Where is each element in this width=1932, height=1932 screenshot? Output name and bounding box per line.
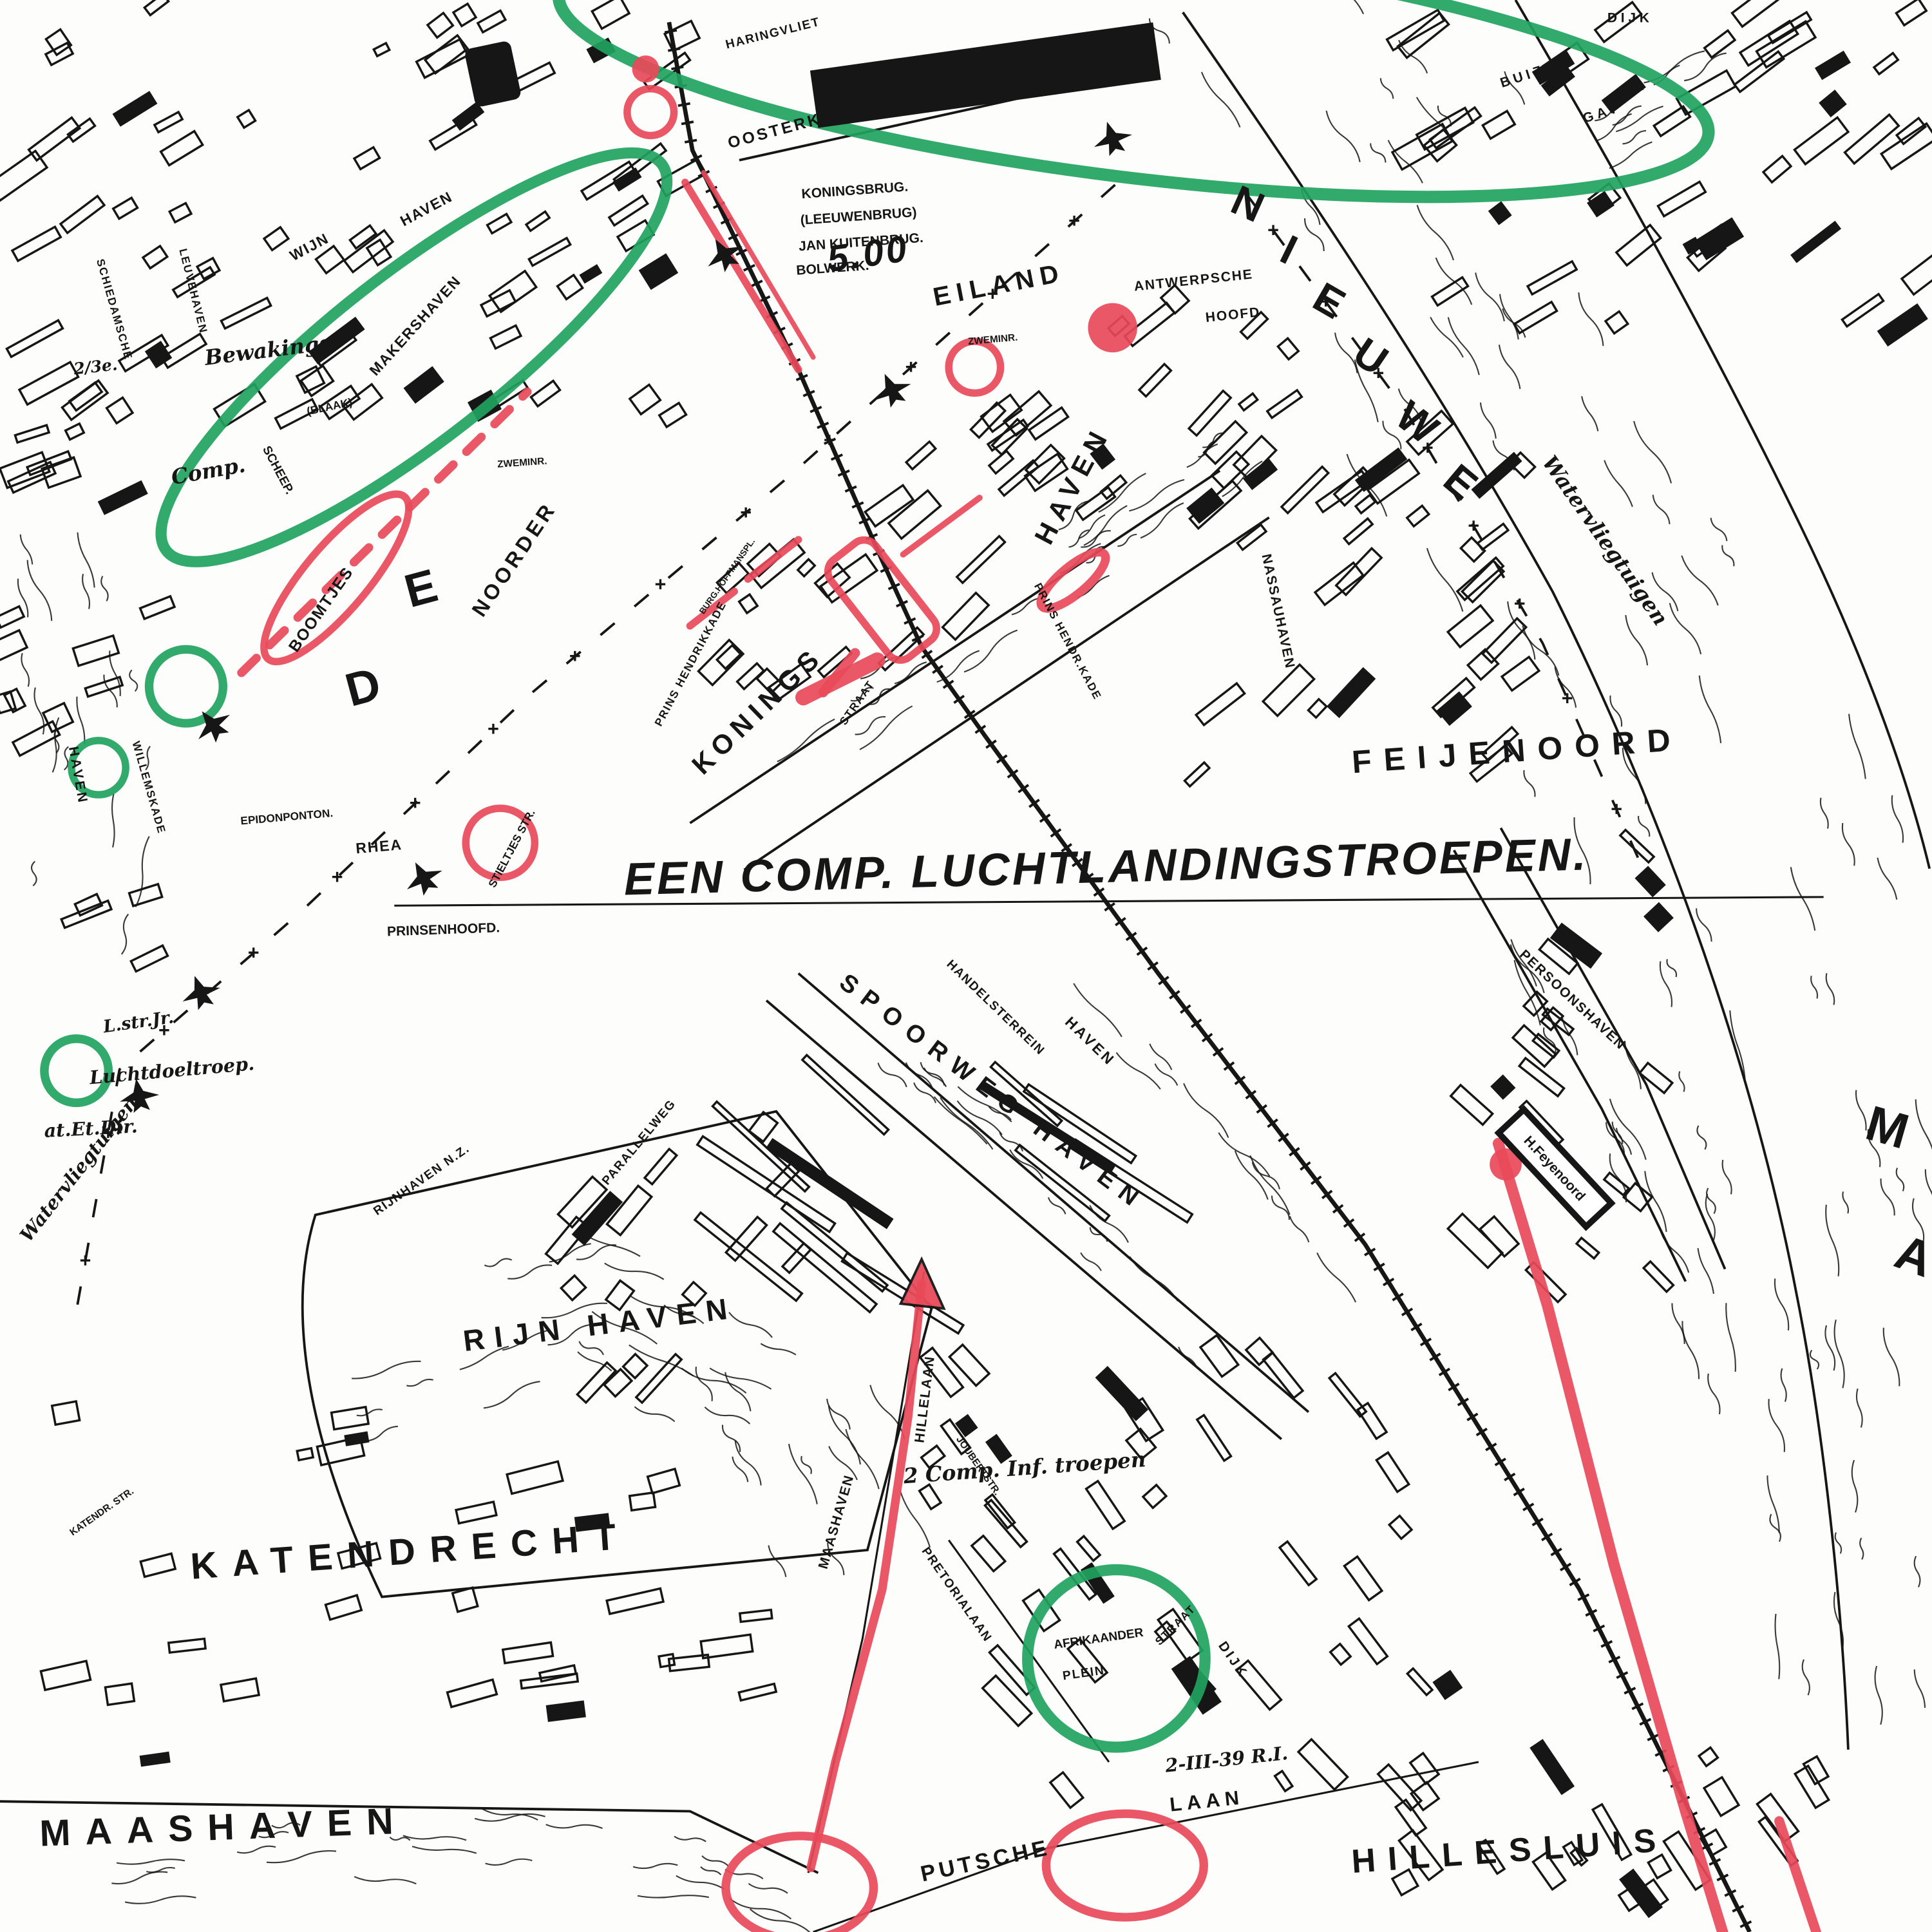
route-plus-mark: +: [248, 942, 260, 963]
route-plus-mark: +: [1468, 515, 1479, 537]
route-plus-mark: +: [1514, 593, 1526, 615]
route-plus-mark: +: [1611, 799, 1622, 820]
route-plus-mark: +: [410, 792, 421, 814]
route-plus-mark: +: [740, 502, 752, 524]
route-plus-mark: +: [1267, 219, 1279, 241]
route-plus-mark: +: [332, 866, 343, 888]
route-plus-mark: +: [1562, 687, 1573, 709]
route-plus-mark: +: [488, 718, 499, 740]
route-plus-mark: +: [905, 356, 917, 378]
route-plus-mark: +: [655, 573, 667, 595]
map-canvas: ++++++++++++++++++++++ 2/3e.BewakingsCom…: [0, 0, 1932, 1932]
route-plus-mark: +: [824, 429, 835, 451]
route-plus-mark: +: [1068, 210, 1080, 232]
map-label-25: DIJK: [1607, 10, 1653, 25]
route-plus-mark: +: [569, 645, 581, 667]
red-pen-mark: [632, 55, 659, 82]
route-plus-mark: +: [80, 1249, 91, 1271]
red-pen-mark: [1088, 303, 1137, 353]
rotterdam-military-map: ++++++++++++++++++++++ 2/3e.BewakingsCom…: [0, 0, 1932, 1932]
